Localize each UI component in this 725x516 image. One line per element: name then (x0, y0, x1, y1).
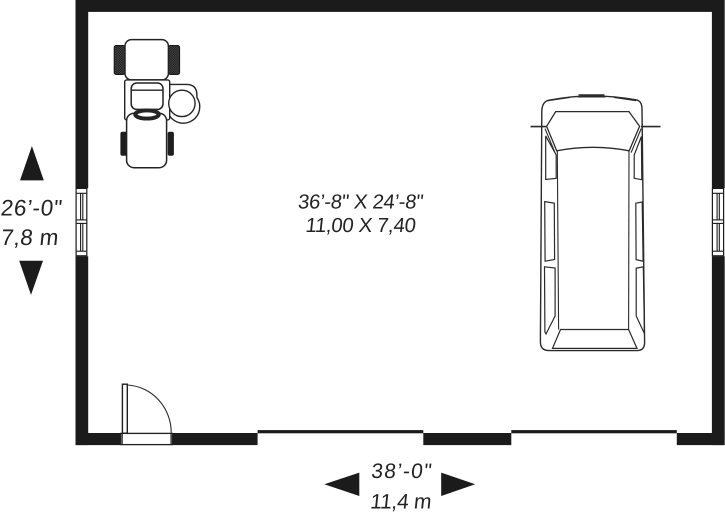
svg-text:7,8 m: 7,8 m (0, 225, 60, 250)
svg-text:11,00 X 7,40: 11,00 X 7,40 (304, 215, 416, 237)
svg-text:38’-0": 38’-0" (370, 460, 434, 483)
svg-text:36’-8" X 24’-8": 36’-8" X 24’-8" (297, 192, 424, 214)
svg-text:26’-0": 26’-0" (0, 195, 64, 220)
svg-text:11,4 m: 11,4 m (369, 490, 432, 513)
